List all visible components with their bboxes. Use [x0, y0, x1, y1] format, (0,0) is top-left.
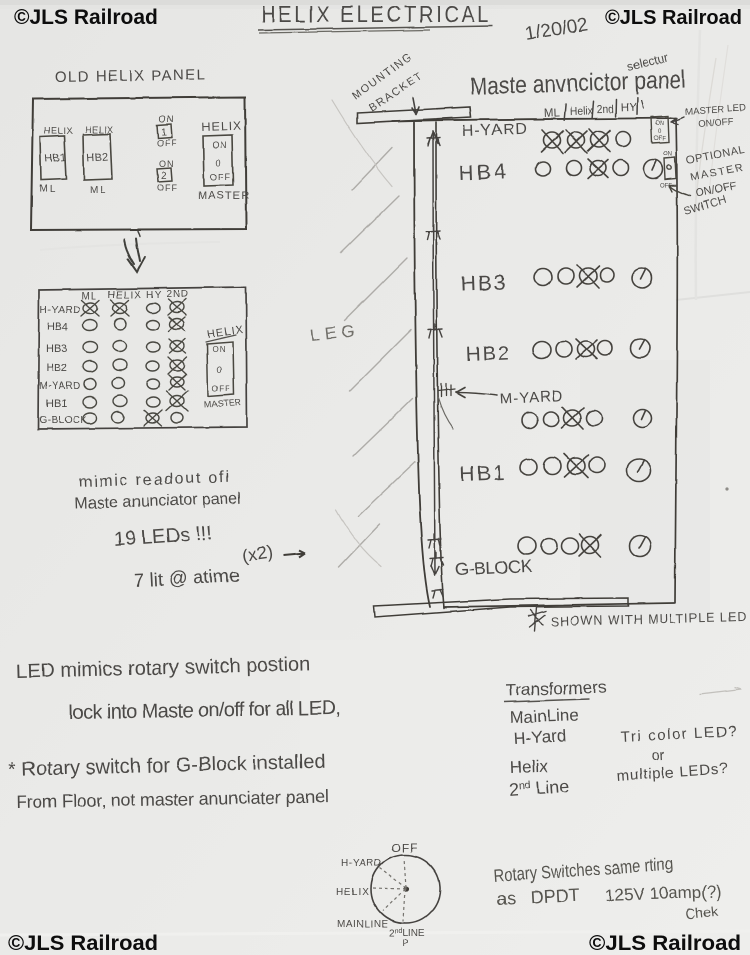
svg-text:HB1: HB1 [46, 398, 67, 410]
svg-text:G-BLOCK: G-BLOCK [39, 415, 88, 426]
svg-text:HELIX: HELIX [202, 119, 242, 134]
svg-text:OFF: OFF [654, 136, 666, 142]
svg-text:M-YARD: M-YARD [499, 388, 564, 408]
svg-text:HB1: HB1 [44, 152, 66, 165]
svg-text:0: 0 [217, 365, 222, 375]
svg-text:HY: HY [621, 102, 638, 115]
svg-text:HB2: HB2 [465, 342, 511, 366]
svg-text:Helix: Helix [509, 757, 548, 777]
svg-text:ML: ML [90, 185, 108, 196]
svg-text:HB1: HB1 [459, 461, 507, 486]
svg-text:M-YARD: M-YARD [39, 381, 81, 392]
svg-text:2nd: 2nd [597, 104, 614, 117]
svg-text:©JLS Railroad: ©JLS Railroad [605, 7, 742, 29]
svg-text:©JLS Railroad: ©JLS Railroad [14, 6, 158, 29]
svg-text:HELIX: HELIX [336, 887, 370, 898]
svg-text:HB3: HB3 [460, 271, 508, 296]
svg-text:MainLine: MainLine [509, 706, 579, 727]
svg-text:OFF: OFF [212, 384, 231, 393]
svg-text:2nd Line: 2nd Line [508, 776, 571, 800]
svg-text:ML: ML [81, 291, 97, 302]
svg-text:2ND: 2ND [166, 289, 189, 300]
svg-text:OLD HELIX PANEL: OLD HELIX PANEL [55, 66, 207, 86]
svg-text:OFF: OFF [157, 183, 178, 193]
svg-text:HB2: HB2 [46, 362, 67, 374]
svg-text:HELIX: HELIX [44, 126, 73, 136]
svg-text:ON: ON [212, 140, 228, 150]
svg-text:OFF: OFF [157, 138, 178, 148]
svg-text:ML: ML [39, 184, 57, 195]
svg-text:G-BLOCK: G-BLOCK [454, 556, 533, 579]
svg-text:ON: ON [159, 159, 175, 169]
svg-text:©JLS Railroad: ©JLS Railroad [8, 932, 158, 955]
svg-text:OFF: OFF [210, 172, 231, 182]
svg-text:H-Yard: H-Yard [513, 726, 567, 748]
svg-text:HB4: HB4 [458, 160, 509, 185]
svg-text:ON: ON [663, 151, 672, 157]
svg-text:MASTER: MASTER [198, 190, 250, 202]
svg-text:HB2: HB2 [86, 152, 108, 165]
svg-text:HY: HY [146, 290, 162, 301]
svg-text:H-YARD: H-YARD [462, 121, 529, 140]
svg-text:or: or [651, 746, 665, 763]
svg-text:©JLS Railroad: ©JLS Railroad [589, 932, 741, 955]
svg-text:HELIX: HELIX [108, 290, 142, 301]
svg-text:ON: ON [212, 345, 226, 354]
svg-text:ML: ML [544, 107, 561, 120]
svg-text:2: 2 [161, 171, 167, 182]
svg-text:0: 0 [216, 158, 221, 168]
svg-text:HB4: HB4 [47, 321, 68, 333]
svg-text:P: P [402, 938, 408, 948]
svg-text:OFF: OFF [391, 841, 418, 855]
svg-text:1: 1 [161, 127, 167, 138]
svg-text:ON: ON [159, 114, 175, 124]
svg-text:ON: ON [655, 121, 664, 127]
svg-text:HELIX ELECTRICAL: HELIX ELECTRICAL [261, 1, 491, 27]
svg-text:Transformers: Transformers [505, 678, 606, 700]
svg-text:H-YARD: H-YARD [40, 305, 81, 316]
svg-text:HB3: HB3 [46, 343, 67, 355]
svg-text:MAINLINE: MAINLINE [337, 919, 388, 930]
svg-text:MASTER: MASTER [204, 397, 242, 409]
svg-text:(x2): (x2) [241, 542, 274, 566]
svg-text:Helix: Helix [570, 105, 594, 118]
svg-text:H-YARD: H-YARD [341, 858, 382, 869]
